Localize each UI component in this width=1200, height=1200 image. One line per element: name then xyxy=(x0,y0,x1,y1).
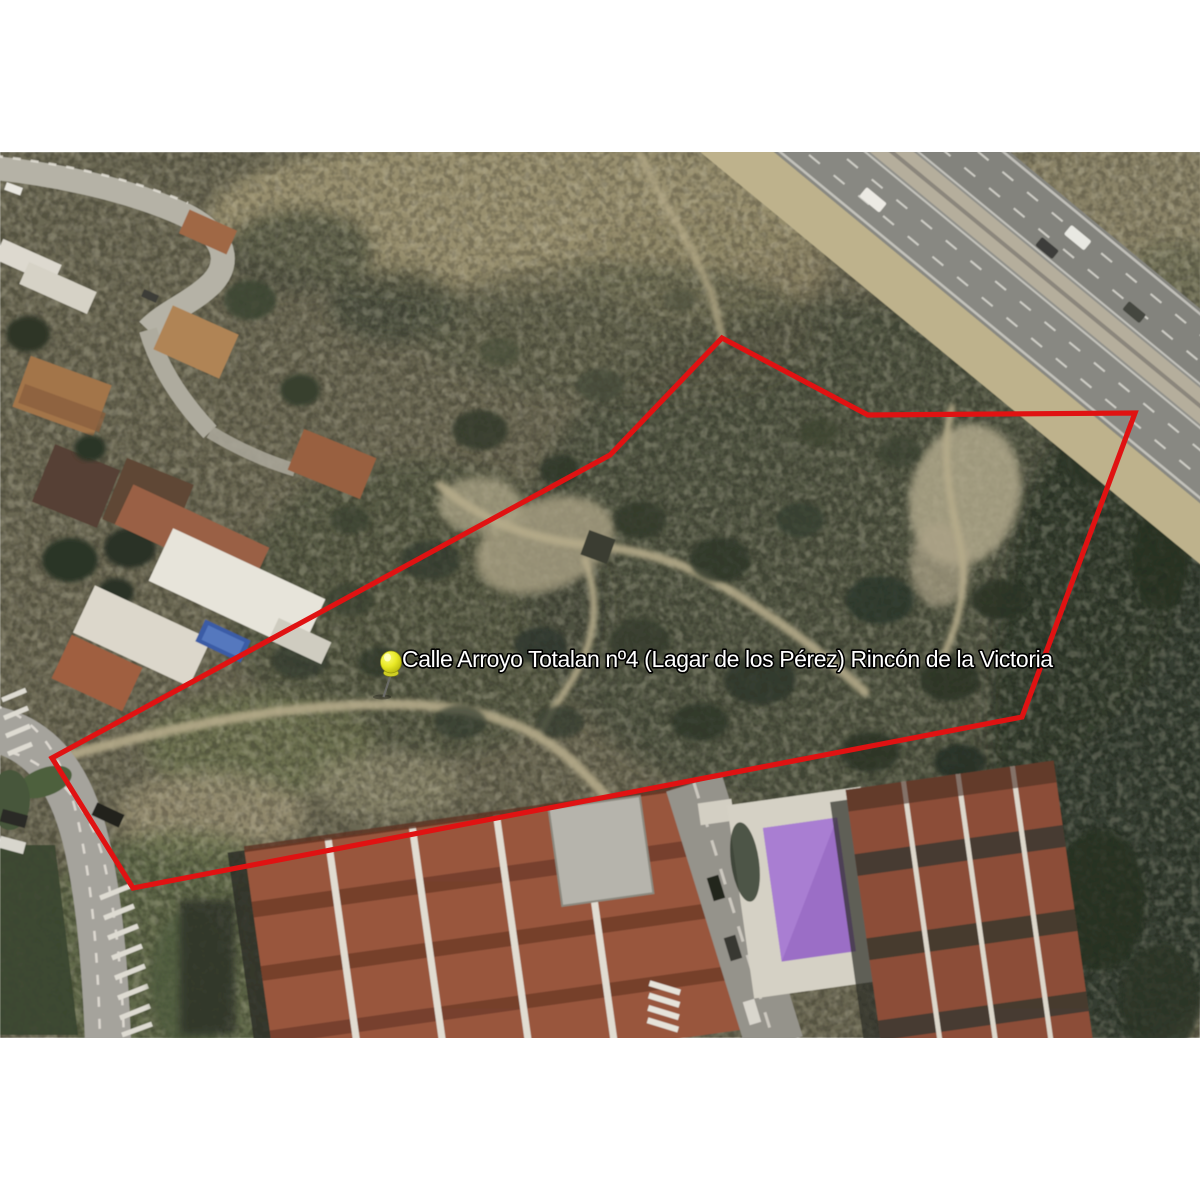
apartment-complex-right xyxy=(829,761,1094,1080)
screenshot-page: Calle Arroyo Totalan nº4 (Lagar de los P… xyxy=(0,0,1200,1200)
complex-shadow xyxy=(180,900,235,1035)
map-imagery: Calle Arroyo Totalan nº4 (Lagar de los P… xyxy=(0,0,1200,1097)
pin-label: Calle Arroyo Totalan nº4 (Lagar de los P… xyxy=(402,646,1053,672)
flat-roof xyxy=(549,796,654,906)
satellite-map[interactable]: Calle Arroyo Totalan nº4 (Lagar de los P… xyxy=(0,0,1200,1200)
